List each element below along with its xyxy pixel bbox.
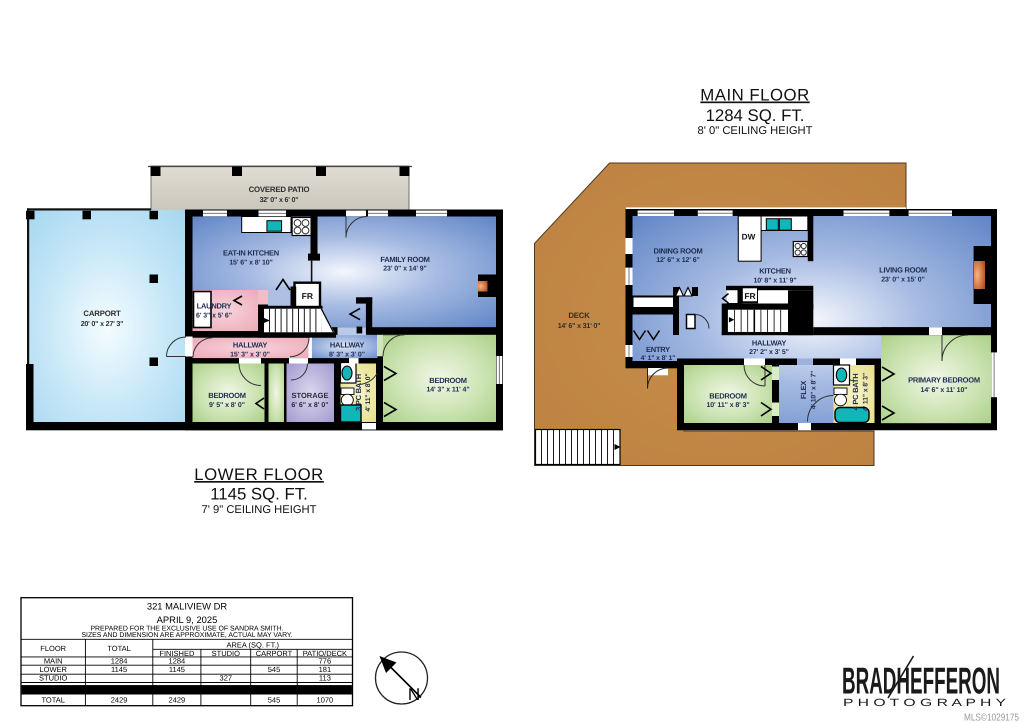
svg-text:1145: 1145 xyxy=(111,665,127,674)
svg-text:BEDROOM: BEDROOM xyxy=(429,376,466,385)
svg-text:HALLWAY: HALLWAY xyxy=(752,339,786,348)
svg-text:TOTAL: TOTAL xyxy=(107,644,130,653)
svg-text:4' 10" x 8' 7": 4' 10" x 8' 7" xyxy=(811,371,818,410)
svg-text:STORAGE: STORAGE xyxy=(292,391,329,400)
svg-text:EAT-IN KITCHEN: EAT-IN KITCHEN xyxy=(223,249,279,258)
svg-text:545: 545 xyxy=(268,695,281,704)
svg-text:LIVING ROOM: LIVING ROOM xyxy=(879,266,927,275)
svg-text:2429: 2429 xyxy=(111,695,128,704)
svg-text:TOTAL: TOTAL xyxy=(41,695,64,704)
svg-text:LAUNDRY: LAUNDRY xyxy=(197,302,232,311)
svg-text:P H O T O G R A P H Y: P H O T O G R A P H Y xyxy=(843,697,1006,709)
svg-text:23' 0" x 14' 9": 23' 0" x 14' 9" xyxy=(383,266,427,273)
svg-text:8' 0" CEILING HEIGHT: 8' 0" CEILING HEIGHT xyxy=(698,125,813,137)
svg-text:HALLWAY: HALLWAY xyxy=(330,341,364,350)
svg-text:ENTRY: ENTRY xyxy=(646,345,670,354)
svg-text:545: 545 xyxy=(268,665,281,674)
svg-text:2429: 2429 xyxy=(169,695,186,704)
svg-text:23' 0" x 15' 0": 23' 0" x 15' 0" xyxy=(881,277,925,284)
svg-text:14' 3" x 11' 4": 14' 3" x 11' 4" xyxy=(426,387,469,394)
svg-text:BEDROOM: BEDROOM xyxy=(208,391,245,400)
svg-text:MAIN FLOOR: MAIN FLOOR xyxy=(700,86,809,105)
svg-text:CARPORT: CARPORT xyxy=(83,309,121,318)
svg-text:N: N xyxy=(408,685,420,704)
svg-text:32' 0" x 6' 0": 32' 0" x 6' 0" xyxy=(260,196,299,204)
svg-text:FLEX: FLEX xyxy=(799,381,808,399)
svg-text:7' 9" CEILING HEIGHT: 7' 9" CEILING HEIGHT xyxy=(202,504,317,516)
svg-text:APRIL 9, 2025: APRIL 9, 2025 xyxy=(157,614,218,625)
svg-text:BEDROOM: BEDROOM xyxy=(709,392,746,401)
svg-text:STUDIO: STUDIO xyxy=(39,674,68,683)
svg-text:CARPORT: CARPORT xyxy=(256,649,293,658)
svg-text:27' 2" x 3' 5": 27' 2" x 3' 5" xyxy=(749,349,789,356)
svg-text:SIZES AND DIMENSION ARE APPROX: SIZES AND DIMENSION ARE APPROXIMATE, ACT… xyxy=(81,632,292,639)
svg-text:3 PC BATH: 3 PC BATH xyxy=(354,374,363,411)
svg-text:8' 3" x 3' 0": 8' 3" x 3' 0" xyxy=(329,352,365,359)
svg-text:MLS©1029175: MLS©1029175 xyxy=(964,713,1019,723)
svg-text:FR: FR xyxy=(302,291,313,301)
svg-text:PRIMARY BEDROOM: PRIMARY BEDROOM xyxy=(908,376,980,385)
svg-text:4' 1" x 8' 1": 4' 1" x 8' 1" xyxy=(641,355,676,362)
svg-text:LOWER FLOOR: LOWER FLOOR xyxy=(194,465,324,484)
svg-text:9' 5" x 8' 0": 9' 5" x 8' 0" xyxy=(209,402,245,409)
svg-text:4' 11" x 8' 0": 4' 11" x 8' 0" xyxy=(365,373,372,411)
svg-text:DECK: DECK xyxy=(568,311,590,320)
svg-text:4' 11" x 8' 3": 4' 11" x 8' 3" xyxy=(863,373,870,411)
svg-text:1145 SQ. FT.: 1145 SQ. FT. xyxy=(210,485,308,504)
svg-text:10' 8" x 11' 9": 10' 8" x 11' 9" xyxy=(753,278,796,285)
svg-text:4 PC BATH: 4 PC BATH xyxy=(851,374,860,411)
svg-text:15' 3" x 3' 0": 15' 3" x 3' 0" xyxy=(230,352,270,359)
svg-text:1284 SQ. FT.: 1284 SQ. FT. xyxy=(706,106,805,125)
svg-text:15' 6" x 8' 10": 15' 6" x 8' 10" xyxy=(229,260,273,267)
svg-text:KITCHEN: KITCHEN xyxy=(759,267,791,276)
svg-text:HALLWAY: HALLWAY xyxy=(233,341,267,350)
svg-text:STUDIO: STUDIO xyxy=(212,649,241,658)
svg-text:20' 0" x 27' 3": 20' 0" x 27' 3" xyxy=(81,320,124,328)
svg-text:10' 11" x 8' 3": 10' 11" x 8' 3" xyxy=(706,402,749,409)
svg-text:113: 113 xyxy=(319,674,331,683)
svg-text:DW: DW xyxy=(742,233,756,242)
svg-text:FLOOR: FLOOR xyxy=(40,644,66,653)
svg-text:327: 327 xyxy=(220,674,233,683)
svg-text:DINING ROOM: DINING ROOM xyxy=(654,247,703,256)
svg-text:1145: 1145 xyxy=(169,665,185,674)
svg-text:12' 6" x 12' 6": 12' 6" x 12' 6" xyxy=(656,257,700,264)
svg-text:1070: 1070 xyxy=(317,695,334,704)
svg-text:321 MALIVIEW DR: 321 MALIVIEW DR xyxy=(147,601,227,612)
svg-text:6' 6" x 8' 0": 6' 6" x 8' 0" xyxy=(291,402,328,409)
svg-text:BRADHEFFERON: BRADHEFFERON xyxy=(842,660,1000,702)
svg-text:FR: FR xyxy=(744,291,755,301)
svg-text:FAMILY ROOM: FAMILY ROOM xyxy=(380,255,429,264)
svg-text:14' 6" x 11' 10": 14' 6" x 11' 10" xyxy=(921,387,968,394)
svg-text:COVERED PATIO: COVERED PATIO xyxy=(249,185,310,194)
svg-text:14' 6" x 31' 0": 14' 6" x 31' 0" xyxy=(558,322,601,330)
svg-text:6' 3" x 5' 6": 6' 3" x 5' 6" xyxy=(196,313,232,320)
